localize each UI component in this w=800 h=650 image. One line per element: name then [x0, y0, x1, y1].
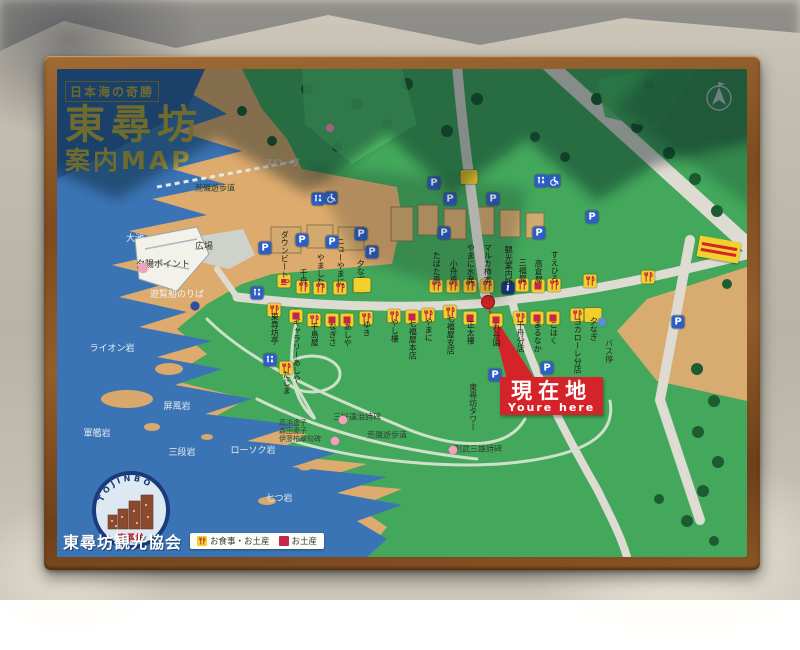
- map-label: 荒磯遊歩道: [367, 430, 407, 439]
- map-label: 七つ岩: [265, 494, 292, 504]
- shop-label: やまに水産: [466, 244, 474, 284]
- shop-meal-marker: マルカ柿本: [481, 280, 494, 293]
- parking-icon: P: [296, 234, 309, 247]
- shop-meal-marker: [642, 271, 655, 284]
- shop-souvenir-marker: 高倉屋: [532, 280, 545, 293]
- shop-meal-marker: 東尋坊亭: [268, 304, 281, 317]
- shop-meal-marker: たじま: [280, 362, 293, 375]
- parking-icon: P: [366, 246, 379, 259]
- map-footer: 東尋坊観光協会 お食事・お土産 お土産: [63, 529, 324, 553]
- map-label: 高浜虚子 森田愛子 伊藤柏翠句碑: [279, 419, 321, 443]
- parking-marker: P: [428, 177, 441, 190]
- shop-label: やし樓: [390, 319, 398, 343]
- map-label: 遊覧船のりば: [150, 290, 204, 300]
- shop-souvenir-marker: 九谷園: [490, 314, 503, 327]
- meal-icon: [642, 271, 655, 284]
- building-marker: [354, 278, 371, 292]
- compass-icon: [702, 79, 736, 113]
- shop-meal-marker: 三福屋: [516, 279, 529, 292]
- meal-icon: [584, 275, 597, 288]
- shop-label: ギャラリーあしや: [292, 319, 300, 383]
- shop-label: やまに: [424, 318, 432, 342]
- title-sub: 案内MAP: [65, 148, 203, 173]
- shop-souvenir-marker: こはく: [547, 312, 560, 325]
- title-tagline: 日本海の奇勝: [65, 81, 159, 102]
- shop-label: 観光案内所: [504, 246, 512, 286]
- shop-label: やました: [316, 254, 324, 286]
- poi-dot: [326, 124, 335, 133]
- souvenir-icon: [279, 536, 289, 546]
- wheelchair-marker: [325, 192, 338, 205]
- parking-marker: P: [586, 211, 599, 224]
- poi-dot: [138, 263, 148, 273]
- parking-marker: P: [444, 193, 457, 206]
- poi-dot: [449, 446, 458, 455]
- parking-marker: P: [672, 316, 685, 329]
- shop-label: 七福屋支店: [446, 315, 454, 355]
- shop-meal-marker: 千島屋: [308, 314, 321, 327]
- shop-label: 三福屋: [518, 259, 526, 283]
- toilet-icon: [312, 193, 325, 206]
- shop-souvenir-marker: なぎさ: [326, 314, 339, 327]
- map-label: 屏風岩: [163, 402, 190, 412]
- map-label: 三段岩: [168, 448, 195, 458]
- shop-meal-marker: 千舟: [297, 281, 310, 294]
- meal-souvenir-icon: [197, 536, 207, 546]
- shop-label: 千舟: [299, 269, 307, 285]
- shop-souvenir-marker: 七福屋本店: [406, 311, 419, 324]
- parking-marker: P: [438, 227, 451, 240]
- shop-meal-marker: ゆき: [360, 312, 373, 325]
- parking-marker: P: [366, 246, 379, 259]
- map-label: バス停: [604, 339, 613, 363]
- toilet-icon: [535, 175, 548, 188]
- legend-item-meal: お食事・お土産: [197, 535, 270, 547]
- shop-meal-marker: ニューやまに: [334, 282, 347, 295]
- shop-label: 七福屋本店: [408, 320, 416, 360]
- shop-label: ダウンビート: [280, 231, 288, 279]
- you-are-here-box: 現在地 Youre here: [500, 377, 603, 415]
- parking-icon: P: [355, 228, 368, 241]
- map-label: ライオン岩: [89, 344, 134, 354]
- map-label: 軍艦岩: [83, 429, 110, 439]
- shop-meal-marker: すえひろ: [548, 279, 561, 292]
- shop-label: ヨカローレ分店: [573, 318, 581, 374]
- shop-label: 高倉屋: [534, 260, 542, 284]
- shop-label: 千舟分店: [516, 321, 524, 353]
- toilet-marker: [535, 175, 548, 188]
- parking-icon: P: [428, 177, 441, 190]
- toilet-marker: [251, 287, 264, 300]
- shop-meal-marker: [584, 275, 597, 288]
- poi-dot: [331, 437, 340, 446]
- toilet-marker: [312, 193, 325, 206]
- legend: お食事・お土産 お土産: [190, 533, 324, 549]
- parking-icon: P: [438, 227, 451, 240]
- poi-dot: [191, 302, 200, 311]
- shop-label: たばた亭: [432, 252, 440, 284]
- map-label: 広場: [195, 242, 213, 252]
- legend-label-souvenir: お土産: [292, 535, 318, 547]
- shop-meal-marker: やまに: [422, 309, 435, 322]
- shop-meal-marker: 千舟分店: [514, 312, 527, 325]
- toilet-icon: [264, 354, 277, 367]
- shop-label: まるなか: [533, 321, 541, 353]
- parking-marker: P: [259, 242, 272, 255]
- shop-cafe-marker: ダウンビート: [278, 275, 291, 288]
- parking-icon: P: [326, 236, 339, 249]
- shop-label: なぎさ: [328, 323, 336, 347]
- parking-icon: P: [586, 211, 599, 224]
- building-block: [354, 278, 371, 292]
- title-main: 東尋坊: [65, 102, 203, 148]
- shop-meal-marker: たばた亭: [430, 280, 443, 293]
- parking-marker: P: [541, 362, 554, 375]
- shop-label: ゆき: [362, 321, 370, 337]
- shop-souvenir-marker: まるなか: [531, 312, 544, 325]
- shop-label: 夕なぎ: [589, 317, 597, 341]
- wheelchair-icon: [325, 192, 338, 205]
- parking-marker: P: [326, 236, 339, 249]
- shop-label: 正太樓: [466, 321, 474, 345]
- map-label: ローソク岩: [230, 446, 275, 456]
- information-office-marker: i観光案内所: [502, 282, 515, 295]
- you-are-here-jp: 現在地: [508, 380, 595, 402]
- shop-label: マルカ柿本: [483, 244, 491, 284]
- parking-icon: P: [444, 193, 457, 206]
- shop-label: 東尋坊亭: [270, 313, 278, 345]
- shop-label: あしや: [343, 323, 351, 347]
- parking-icon: P: [672, 316, 685, 329]
- map-label: 則武三雄詩碑: [454, 444, 502, 453]
- shop-label: 小舟亭: [449, 260, 457, 284]
- toilet-marker: [264, 354, 277, 367]
- parking-icon: P: [541, 362, 554, 375]
- current-location-dot: [482, 296, 494, 308]
- shop-souvenir-marker: 正太樓: [464, 312, 477, 325]
- parking-icon: P: [533, 227, 546, 240]
- map-label: 東尋坊タワー: [468, 383, 477, 431]
- parking-marker: P: [533, 227, 546, 240]
- legend-label-meal: お食事・お土産: [210, 535, 270, 547]
- map-title: 日本海の奇勝 東尋坊 案内MAP: [65, 81, 203, 173]
- parking-icon: P: [259, 242, 272, 255]
- shop-souvenir-marker: あしや: [341, 314, 354, 327]
- shop-meal-marker: ヨカローレ分店: [571, 309, 584, 322]
- shop-label: こはく: [549, 321, 557, 345]
- map-label: 大池: [126, 234, 144, 244]
- toilet-icon: [251, 287, 264, 300]
- parking-marker: P: [296, 234, 309, 247]
- map-label: 荒磯遊歩道: [195, 183, 235, 192]
- tojinbo-guide-map: ダウンビート千舟やましたニューやまに夕なぎたばた亭小舟亭やまに水産マルカ柿本三福…: [57, 69, 747, 557]
- shop-meal-marker: 七福屋支店: [444, 306, 457, 319]
- shop-label: 千島屋: [310, 323, 318, 347]
- association-name: 東尋坊観光協会: [63, 529, 182, 553]
- shop-meal-marker: やし樓: [388, 310, 401, 323]
- you-are-here-en: Youre here: [508, 402, 595, 413]
- shop-meal-marker: やました: [314, 282, 327, 295]
- wheelchair-icon: [548, 175, 561, 188]
- building-marker: [461, 170, 478, 184]
- map-label: スロープ: [264, 159, 299, 169]
- shop-label: たじま: [282, 371, 290, 395]
- shop-label: 九谷園: [492, 323, 500, 347]
- legend-item-souvenir: お土産: [279, 535, 318, 547]
- parking-marker: P: [355, 228, 368, 241]
- poi-dot: [598, 318, 607, 327]
- shop-label: すえひろ: [550, 251, 558, 283]
- wooden-frame: ダウンビート千舟やましたニューやまに夕なぎたばた亭小舟亭やまに水産マルカ柿本三福…: [44, 56, 760, 570]
- parking-icon: P: [487, 193, 500, 206]
- parking-marker: P: [487, 193, 500, 206]
- wheelchair-marker: [548, 175, 561, 188]
- shop-meal-marker: やまに水産: [464, 280, 477, 293]
- shop-souvenir-marker: ギャラリーあしや: [290, 310, 303, 323]
- building-block: [461, 170, 478, 184]
- poi-dot: [339, 416, 348, 425]
- shop-meal-marker: 小舟亭: [447, 280, 460, 293]
